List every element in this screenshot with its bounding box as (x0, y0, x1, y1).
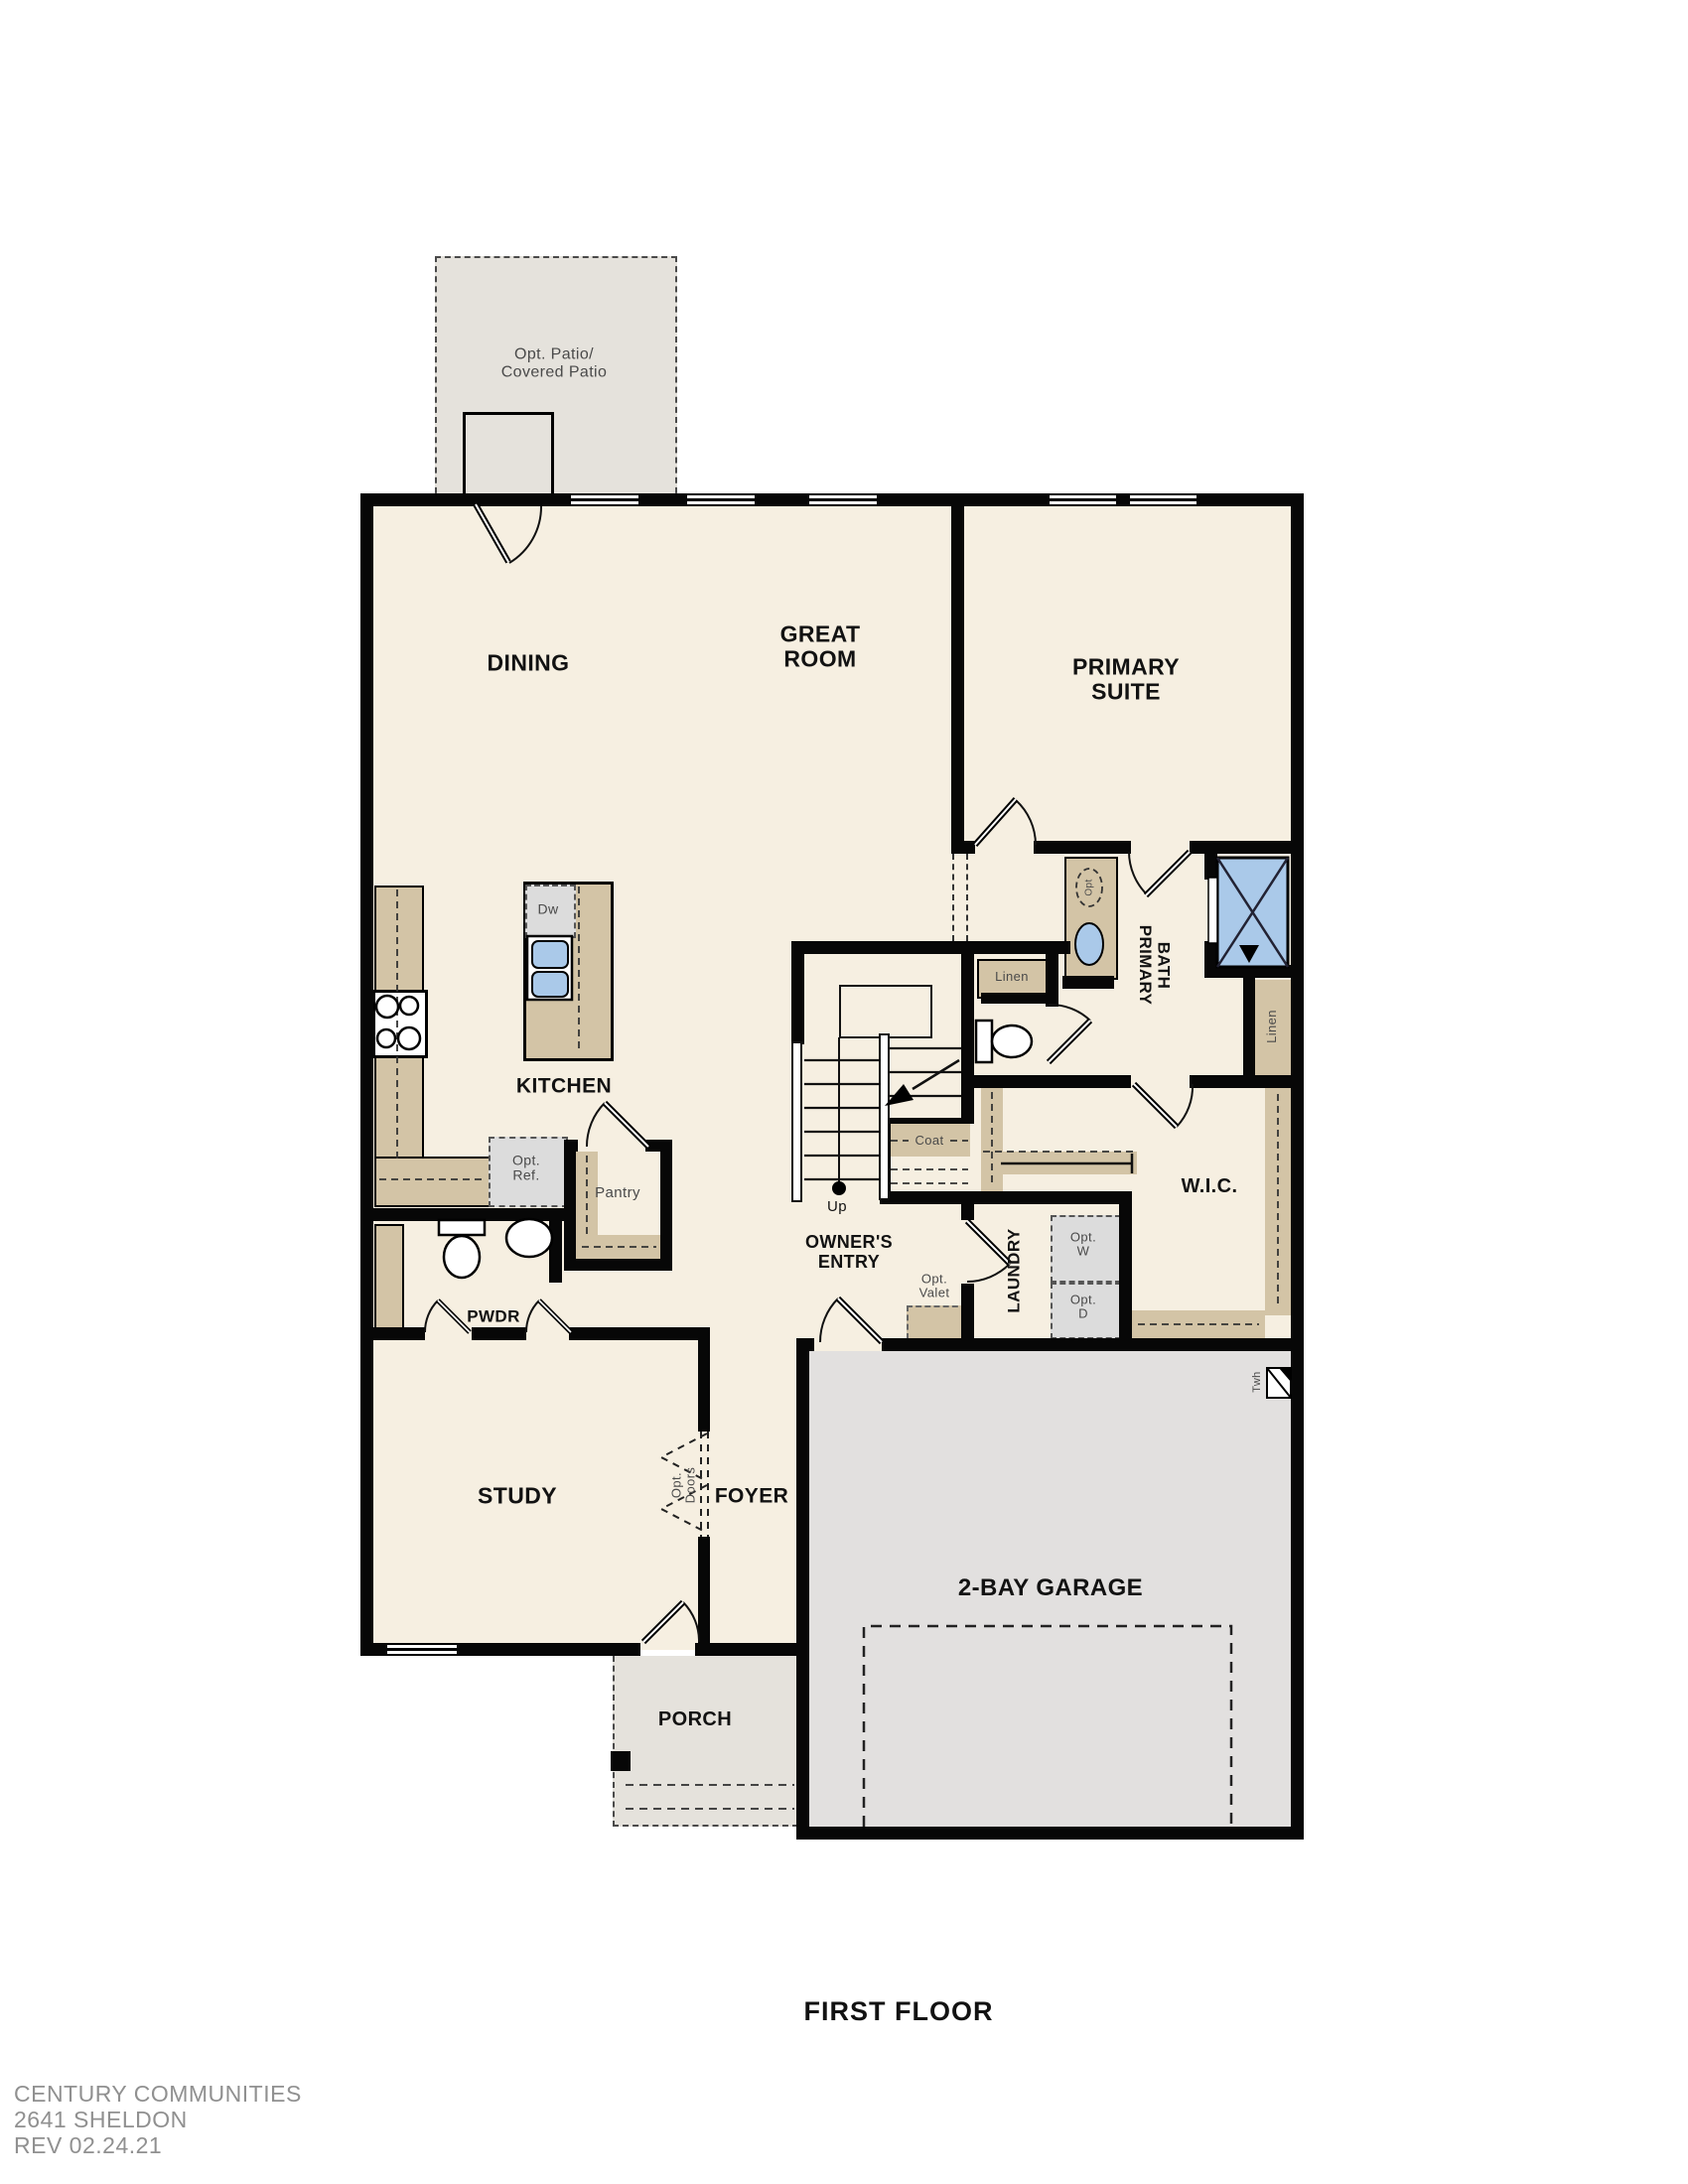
wall (564, 1140, 578, 1152)
label-opt-ref: Opt. Ref. (512, 1154, 540, 1184)
wall (360, 1643, 387, 1656)
wall (472, 1327, 526, 1340)
floor-title: FIRST FLOOR (804, 1997, 994, 2027)
wall (569, 1327, 710, 1340)
wall (1062, 976, 1114, 989)
wall (1034, 841, 1131, 854)
wall (951, 506, 964, 849)
wall (695, 1643, 809, 1656)
wall (1204, 941, 1217, 967)
wall (1243, 978, 1255, 1075)
room-label-dining: DINING (488, 650, 570, 675)
wall (564, 1259, 672, 1271)
wall (968, 1075, 1131, 1088)
room-label-great-room: GREAT ROOM (780, 622, 861, 673)
wic-shelf (1265, 1088, 1291, 1315)
wall (549, 1221, 562, 1283)
window (809, 493, 877, 506)
footer-revision: REV 02.24.21 (14, 2132, 162, 2159)
wall (791, 941, 1070, 954)
room-label-primary-suite: PRIMARY SUITE (1072, 655, 1180, 706)
wall (1190, 841, 1304, 854)
label-dishwasher: Dw (537, 901, 558, 916)
wall (796, 1351, 809, 1840)
room-label-pwdr: PWDR (467, 1308, 520, 1327)
wall (961, 1284, 974, 1338)
wall (1291, 493, 1304, 1351)
wall (882, 1338, 1304, 1351)
wall (791, 954, 804, 1044)
room-label-primary-bath: PRIMARY BATH (1135, 925, 1172, 1006)
wall (373, 1208, 576, 1221)
wall (1204, 854, 1217, 880)
bath-vanity (1064, 857, 1118, 980)
opt-valet-bench (907, 1305, 967, 1339)
pwdr-vanity (374, 1224, 404, 1339)
wall (880, 1191, 1132, 1204)
wall (1190, 1075, 1304, 1088)
wall (880, 1118, 973, 1124)
wall (796, 1338, 814, 1351)
label-opt-tub: Opt (1084, 879, 1095, 895)
room-label-laundry: LAUNDRY (1006, 1228, 1025, 1312)
wall (1119, 1204, 1132, 1338)
kitchen-counter-return (374, 1157, 491, 1207)
room-label-kitchen: KITCHEN (516, 1074, 612, 1097)
wall (961, 1203, 974, 1220)
label-linen-bath: Linen (1265, 1010, 1279, 1043)
wall (698, 1340, 710, 1432)
wall (373, 1327, 425, 1340)
room-label-wic: W.I.C. (1182, 1175, 1238, 1197)
room-label-study: STUDY (478, 1483, 557, 1508)
patio-door-landing (463, 412, 554, 499)
footer-company: CENTURY COMMUNITIES (14, 2081, 302, 2108)
wall (961, 954, 974, 1124)
room-label-porch: PORCH (658, 1708, 732, 1730)
window (1050, 493, 1116, 506)
pantry-shelf (576, 1235, 660, 1259)
wall (457, 1643, 640, 1656)
wic-shelf (1132, 1310, 1265, 1338)
label-coat: Coat (914, 1134, 943, 1148)
wall (951, 841, 975, 854)
label-opt-dryer: Opt. D (1070, 1294, 1096, 1322)
wall (698, 1537, 710, 1643)
porch-area (613, 1656, 798, 1827)
wic-shelf (981, 1152, 1137, 1174)
window (687, 493, 755, 506)
wall (660, 1140, 672, 1271)
label-linen-hall: Linen (995, 970, 1029, 984)
window (1130, 493, 1196, 506)
wall (796, 1827, 1304, 1840)
cased-opening (952, 854, 968, 941)
room-label-pantry: Pantry (595, 1185, 640, 1202)
wall (1291, 1351, 1304, 1840)
label-opt-valet: Opt. Valet (919, 1273, 950, 1301)
room-label-foyer: FOYER (715, 1484, 788, 1507)
room-label-patio: Opt. Patio/ Covered Patio (501, 345, 608, 380)
wall (564, 1152, 576, 1271)
label-opt-washer: Opt. W (1070, 1231, 1096, 1260)
label-twh: Twh (1251, 1371, 1263, 1392)
wic-shelf (981, 1088, 1003, 1191)
wall (1046, 954, 1058, 1007)
wall (360, 493, 373, 1656)
room-label-garage: 2-BAY GARAGE (958, 1575, 1143, 1601)
cooktop (372, 990, 428, 1058)
label-up: Up (827, 1199, 847, 1216)
window (387, 1643, 457, 1656)
wall (1204, 965, 1304, 978)
label-opt-doors: Opt. Doors (670, 1467, 699, 1504)
window (571, 493, 638, 506)
footer-plan: 2641 SHELDON (14, 2107, 188, 2133)
room-label-owners-entry: OWNER'S ENTRY (805, 1233, 893, 1273)
floorplan-page: Opt. Patio/ Covered Patio DINING GREAT R… (0, 0, 1688, 2184)
